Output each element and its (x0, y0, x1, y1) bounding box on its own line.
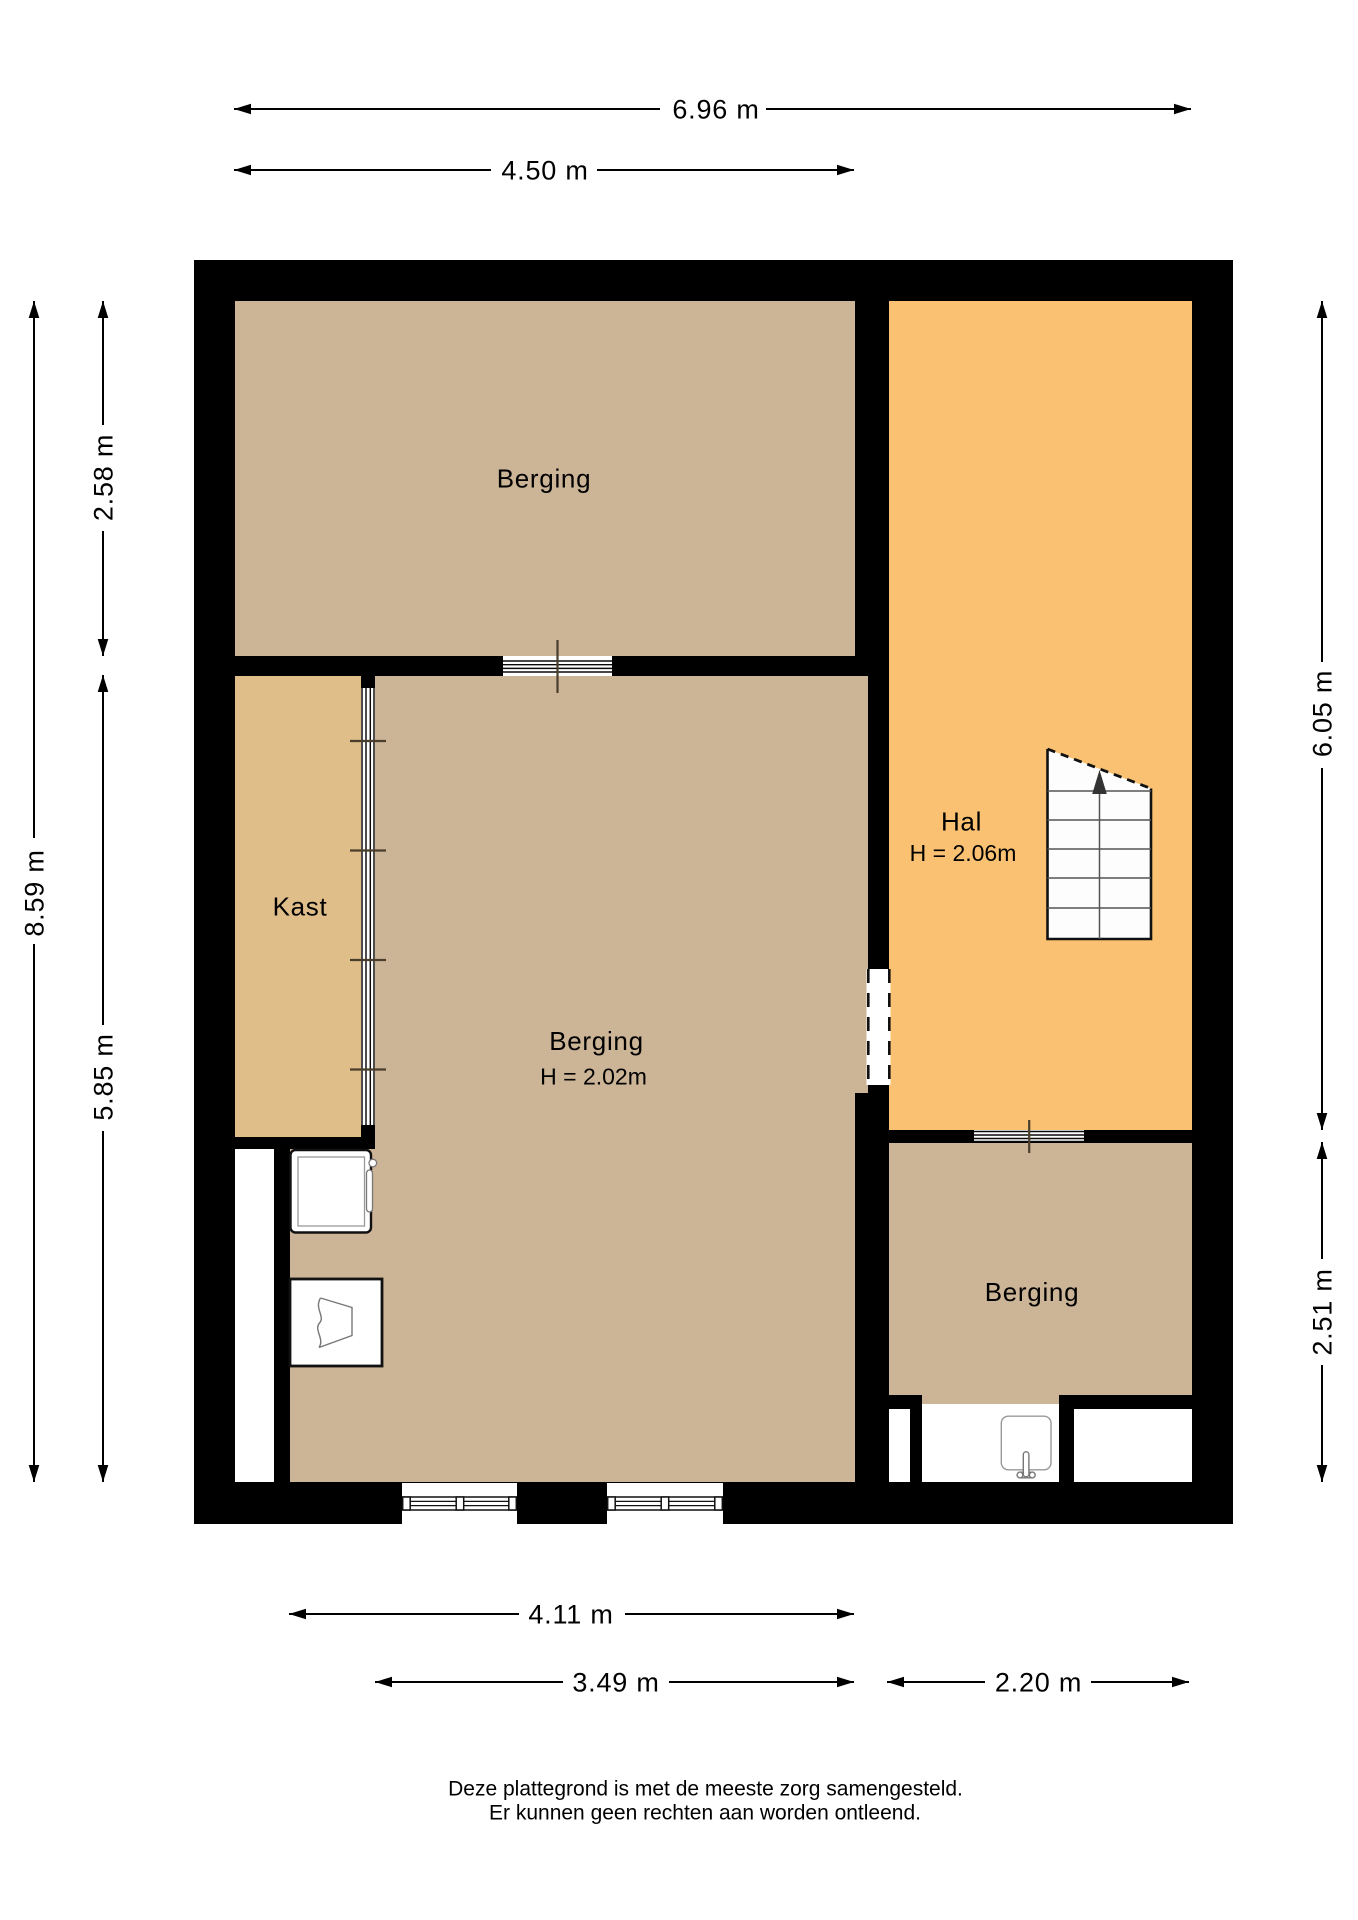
svg-text:Berging: Berging (985, 1277, 1080, 1307)
svg-text:2.58 m: 2.58 m (89, 434, 119, 521)
svg-text:5.85 m: 5.85 m (89, 1033, 119, 1120)
svg-text:4.11 m: 4.11 m (528, 1600, 613, 1630)
svg-text:Berging: Berging (497, 464, 592, 494)
svg-text:6.05 m: 6.05 m (1308, 670, 1338, 757)
svg-text:3.49 m: 3.49 m (572, 1668, 659, 1698)
svg-text:Deze plattegrond is met de mee: Deze plattegrond is met de meeste zorg s… (448, 1777, 963, 1800)
svg-text:8.59 m: 8.59 m (20, 849, 50, 936)
svg-text:6.96 m: 6.96 m (672, 95, 759, 125)
svg-text:Berging: Berging (549, 1026, 644, 1056)
svg-text:H = 2.02m: H = 2.02m (540, 1064, 647, 1090)
svg-text:H = 2.06m: H = 2.06m (910, 840, 1017, 866)
svg-text:Hal: Hal (941, 807, 982, 837)
svg-text:Kast: Kast (273, 892, 328, 922)
svg-text:2.20 m: 2.20 m (995, 1668, 1082, 1698)
svg-text:4.50 m: 4.50 m (501, 156, 588, 186)
svg-text:Er kunnen geen rechten aan wor: Er kunnen geen rechten aan worden ontlee… (489, 1802, 921, 1825)
svg-text:2.51 m: 2.51 m (1308, 1268, 1338, 1355)
